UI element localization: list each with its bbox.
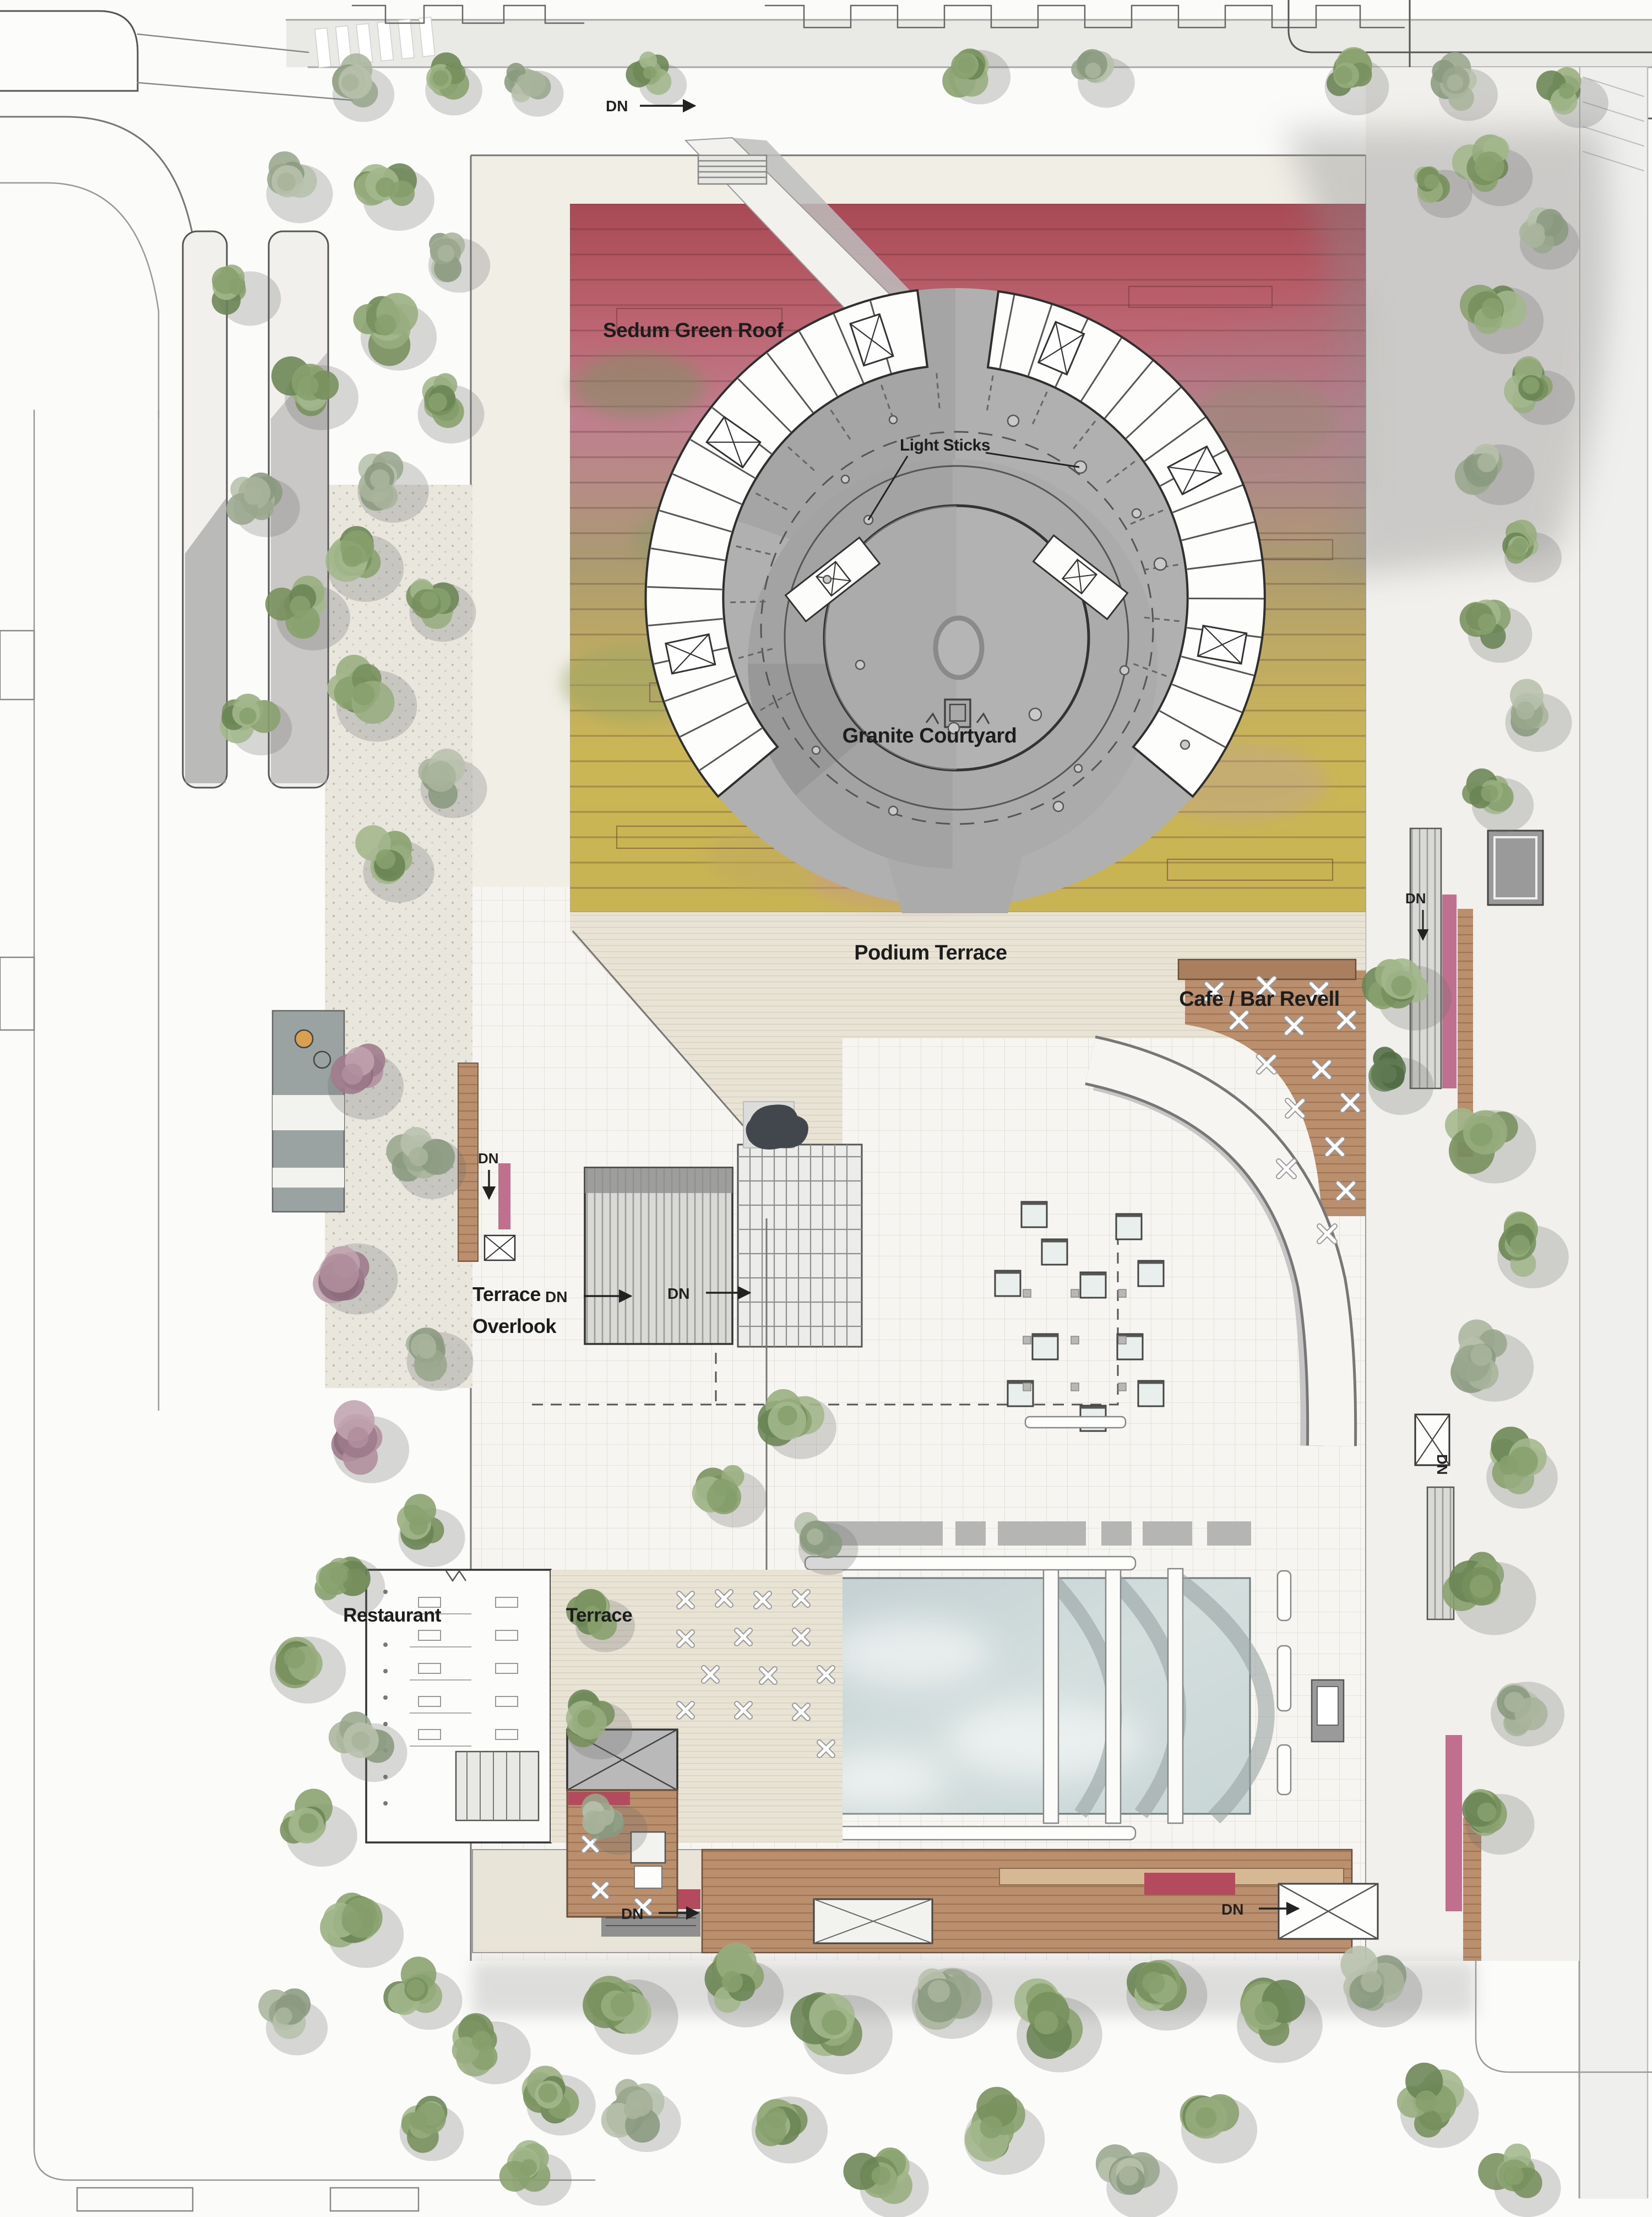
flower-planter xyxy=(1445,1735,1462,1911)
dn-east-lower: DN xyxy=(1434,1454,1450,1475)
bench xyxy=(1178,960,1356,979)
label-restaurant: Restaurant xyxy=(343,1605,442,1626)
dn-overlook-1: DN xyxy=(545,1288,567,1305)
label-terrace-overlook-1: Terrace xyxy=(472,1283,541,1305)
pool-north-pavers xyxy=(805,1521,1251,1546)
label-cafe-bar-revell: Cafe / Bar Revell xyxy=(1179,988,1339,1011)
bench xyxy=(1025,1417,1126,1428)
dn-overlook-west: DN xyxy=(478,1150,499,1167)
label-podium-terrace: Podium Terrace xyxy=(854,941,1007,964)
restaurant-stair xyxy=(456,1752,539,1820)
oculus xyxy=(936,618,982,677)
label-terrace: Terrace xyxy=(566,1605,632,1626)
label-light-sticks: Light Sticks xyxy=(900,436,990,454)
label-granite-courtyard: Granite Courtyard xyxy=(843,724,1017,747)
south-stair xyxy=(814,1899,932,1943)
label-terrace-overlook-2: Overlook xyxy=(472,1315,557,1337)
dn-east-upper: DN xyxy=(1405,890,1426,907)
site-plan: Sedum Green Roof Light Sticks Granite Co… xyxy=(0,0,1652,2217)
dn-top: DN xyxy=(606,97,628,115)
dn-south-east: DN xyxy=(1221,1901,1243,1918)
south-skylight-box xyxy=(1279,1884,1378,1939)
top-stairs xyxy=(698,155,767,184)
dn-south-west: DN xyxy=(621,1905,643,1922)
trellis-canopy xyxy=(738,1145,862,1347)
dn-overlook-2: DN xyxy=(667,1285,689,1302)
flower-planter xyxy=(1144,1873,1235,1895)
label-sedum-green-roof: Sedum Green Roof xyxy=(603,319,784,342)
